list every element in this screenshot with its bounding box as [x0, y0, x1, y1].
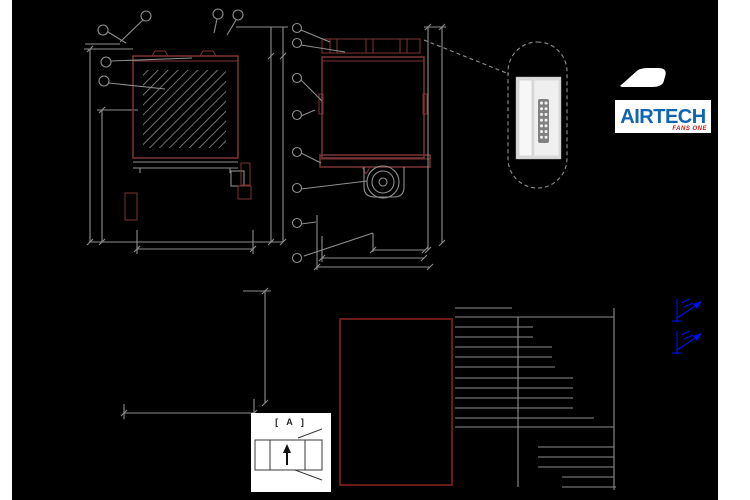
airflow-arrow-head: [283, 444, 291, 453]
side-unit-body: [319, 39, 430, 198]
white-blob-logo: [620, 68, 666, 87]
callout-balloon: [213, 9, 223, 19]
filter-hatch-panel: [143, 70, 226, 148]
callout-balloon: [293, 39, 302, 48]
base-frame: [320, 155, 430, 167]
drawing-canvas: [0, 0, 750, 500]
section-arrow-icons: [672, 299, 702, 354]
side-bracket: [238, 186, 251, 199]
callout-balloon: [293, 111, 302, 120]
section-arrow-icon: [672, 331, 702, 354]
detail-a-box: [ A ]: [251, 413, 331, 492]
callout-balloon: [293, 254, 302, 263]
side-callouts: [293, 24, 374, 263]
latch-keypad: [538, 99, 549, 143]
airtech-tagline-text: FANS ONE: [672, 126, 707, 132]
callout-balloon: [98, 25, 108, 35]
callout-balloon: [141, 11, 151, 21]
latch-handle: [519, 80, 532, 156]
detail-a-drawing: [251, 413, 331, 492]
callout-balloon: [293, 148, 302, 157]
latch-detail-view: [424, 40, 567, 188]
wall-bracket: [125, 193, 137, 220]
airtech-logo: AIRTECH FANS ONE: [615, 100, 711, 133]
callout-balloon: [293, 219, 302, 228]
callout-balloon: [293, 74, 302, 83]
parts-table-grid: [455, 308, 616, 490]
front-unit-body: [125, 51, 251, 220]
drain-box: [231, 171, 244, 186]
callout-balloon: [293, 24, 302, 33]
section-arrow-icon: [672, 299, 702, 322]
drawing-sheet: AIRTECH FANS ONE [ A ]: [0, 0, 750, 500]
airtech-brand-text: AIRTECH: [620, 107, 705, 127]
side-spigot: [241, 163, 250, 185]
detail-leader-line: [424, 40, 509, 74]
callout-balloon: [101, 57, 111, 67]
callout-balloon: [293, 184, 302, 193]
airflow-box: [255, 440, 322, 470]
red-outline-rect: [340, 319, 452, 485]
callout-balloon: [233, 10, 243, 20]
side-cabinet-outline: [322, 57, 424, 158]
callout-balloon: [99, 76, 109, 86]
side-view: [293, 24, 447, 271]
front-view: [84, 9, 288, 254]
bottom-view-dimensions: [121, 288, 271, 419]
